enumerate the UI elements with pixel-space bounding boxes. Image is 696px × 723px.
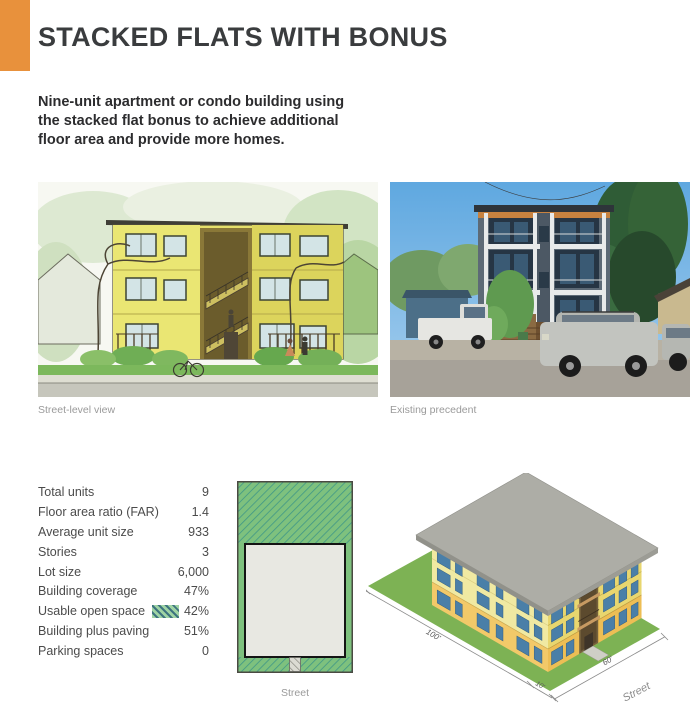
stat-label: Building plus paving — [38, 624, 149, 638]
stat-row-parking-spaces: Parking spaces 0 — [38, 641, 209, 661]
caption-existing-precedent: Existing precedent — [390, 404, 690, 416]
open-space-rear — [239, 483, 352, 545]
open-space-hatch-swatch — [152, 605, 179, 618]
stat-row-stories: Stories 3 — [38, 542, 209, 562]
building-footprint — [245, 544, 345, 657]
stat-value: 1.4 — [192, 505, 209, 519]
dim-label-100: 100' — [425, 627, 443, 642]
entry-walkway — [290, 658, 301, 672]
stat-value: 3 — [202, 545, 209, 559]
site-plan-diagram — [237, 481, 353, 673]
page-title: STACKED FLATS WITH BONUS — [38, 22, 448, 53]
stat-row-total-units: Total units 9 — [38, 482, 209, 502]
stat-value: 6,000 — [178, 565, 209, 579]
accent-bar — [0, 0, 30, 71]
stat-label: Stories — [38, 545, 77, 559]
document-page: STACKED FLATS WITH BONUS Nine-unit apart… — [0, 0, 696, 723]
page-subtitle: Nine-unit apartment or condo building us… — [38, 93, 344, 150]
figure-street-level: Street-level view — [38, 182, 378, 416]
subtitle-line: the stacked flat bonus to achieve additi… — [38, 112, 344, 131]
stat-row-usable-open-space: Usable open space 42% — [38, 601, 209, 621]
stat-value: 0 — [202, 644, 209, 658]
existing-precedent-photo — [390, 182, 690, 397]
stat-value: 47% — [184, 584, 209, 598]
stat-value: 9 — [202, 485, 209, 499]
subtitle-line: Nine-unit apartment or condo building us… — [38, 93, 344, 112]
stat-label: Building coverage — [38, 584, 137, 598]
stat-label: Parking spaces — [38, 644, 123, 658]
stat-value: 42% — [184, 604, 209, 618]
axon-street-label: Street — [621, 680, 653, 705]
stat-label: Average unit size — [38, 525, 134, 539]
stat-row-building-coverage: Building coverage 47% — [38, 581, 209, 601]
stat-label: Total units — [38, 485, 94, 499]
stat-row-avg-unit-size: Average unit size 933 — [38, 522, 209, 542]
street-level-view-image — [38, 182, 378, 397]
stat-value: 51% — [184, 624, 209, 638]
stat-row-building-plus-paving: Building plus paving 51% — [38, 621, 209, 641]
site-plan-street-label: Street — [237, 687, 353, 699]
subtitle-line: floor area and provide more homes. — [38, 131, 344, 150]
caption-street-level-view: Street-level view — [38, 404, 378, 416]
stat-row-lot-size: Lot size 6,000 — [38, 562, 209, 582]
stat-value: 933 — [188, 525, 209, 539]
axonometric-diagram: 100' 10' 60' Street — [366, 473, 696, 723]
stat-label: Lot size — [38, 565, 81, 579]
stats-table: Total units 9 Floor area ratio (FAR) 1.4… — [38, 482, 209, 661]
stat-row-far: Floor area ratio (FAR) 1.4 — [38, 502, 209, 522]
figure-existing-precedent: Existing precedent — [390, 182, 690, 416]
stat-label: Usable open space — [38, 604, 145, 618]
stat-label: Floor area ratio (FAR) — [38, 505, 159, 519]
